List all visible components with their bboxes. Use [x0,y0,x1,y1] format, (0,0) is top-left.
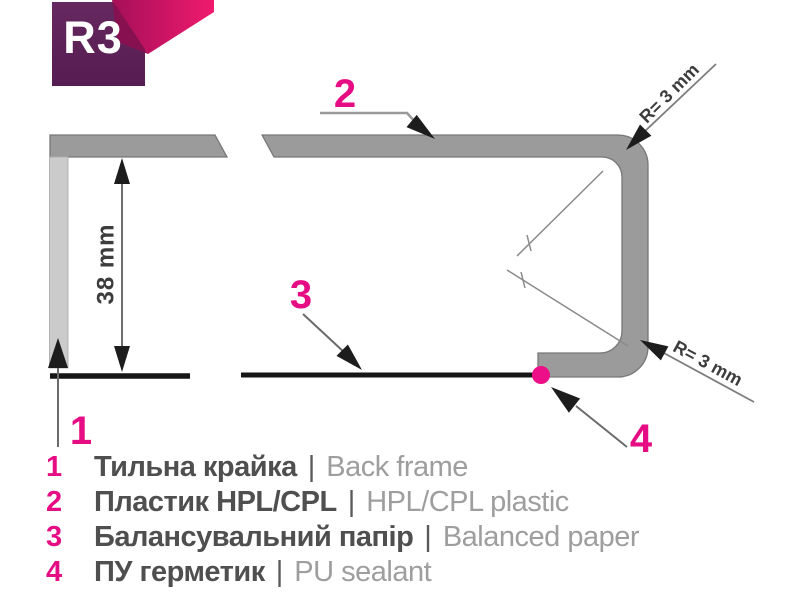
hpl-top-layer-left-segment [50,135,227,157]
legend-label-uk: ПУ герметик [94,556,265,589]
legend-item-pu-sealant: 4 ПУ герметик | PU sealant [46,556,746,591]
legend-label-uk: Балансувальний папір [94,521,413,554]
callout-1-label: 1 [70,409,92,453]
callout-1: 1 [48,338,92,453]
legend-label-uk: Тильна крайка [94,451,297,484]
back-frame-strip [50,157,69,368]
legend-separator: | [308,451,316,484]
callout-3: 3 [290,273,362,370]
legend-label-uk: Пластик HPL/CPL [94,486,337,519]
legend-number: 2 [46,486,94,519]
hpl-plastic-profile [262,135,648,377]
edge-profile-page: R3 38 mm R= 3 mm R= 3 mm [0,0,800,600]
center-mark-line-bottom [507,270,628,346]
radius-center-marks [507,171,628,346]
dimension-arrow-down-icon [114,346,130,372]
legend-label-en: PU sealant [294,556,431,589]
callout-2-label: 2 [334,72,356,116]
profile-badge: R3 [52,0,214,86]
callout-4-arrow-icon [551,387,580,413]
legend-label-en: Balanced paper [443,521,639,554]
callout-4-leader [576,406,627,447]
center-mark-line-top [517,171,603,256]
legend-separator: | [348,486,356,519]
dimension-arrow-up-icon [114,158,130,184]
radius-label-top: R= 3 mm [635,59,703,127]
legend-number: 1 [46,451,94,484]
dimension-label: 38 mm [92,223,119,304]
legend-item-back-frame: 1 Тильна крайка | Back frame [46,451,746,486]
legend-separator: | [276,556,284,589]
badge-label: R3 [63,12,123,63]
legend-item-hpl-plastic: 2 Пластик HPL/CPL | HPL/CPL plastic [46,486,746,521]
dimension-line-38mm: 38 mm [92,158,130,372]
legend-number: 3 [46,521,94,554]
legend-separator: | [424,521,432,554]
radius-callout-bottom: R= 3 mm [640,336,754,402]
pu-sealant-dot [532,366,550,384]
callout-3-label: 3 [290,273,312,317]
legend-label-en: HPL/CPL plastic [366,486,569,519]
callout-4: 4 [551,387,653,461]
legend-number: 4 [46,556,94,589]
legend-item-balanced-paper: 3 Балансувальний папір | Balanced paper [46,521,746,556]
radius-callout-top: R= 3 mm [626,59,716,150]
callout-2: 2 [320,72,435,139]
callout-3-leader [303,314,345,353]
legend: 1 Тильна крайка | Back frame 2 Пластик H… [46,451,746,591]
legend-label-en: Back frame [326,451,468,484]
